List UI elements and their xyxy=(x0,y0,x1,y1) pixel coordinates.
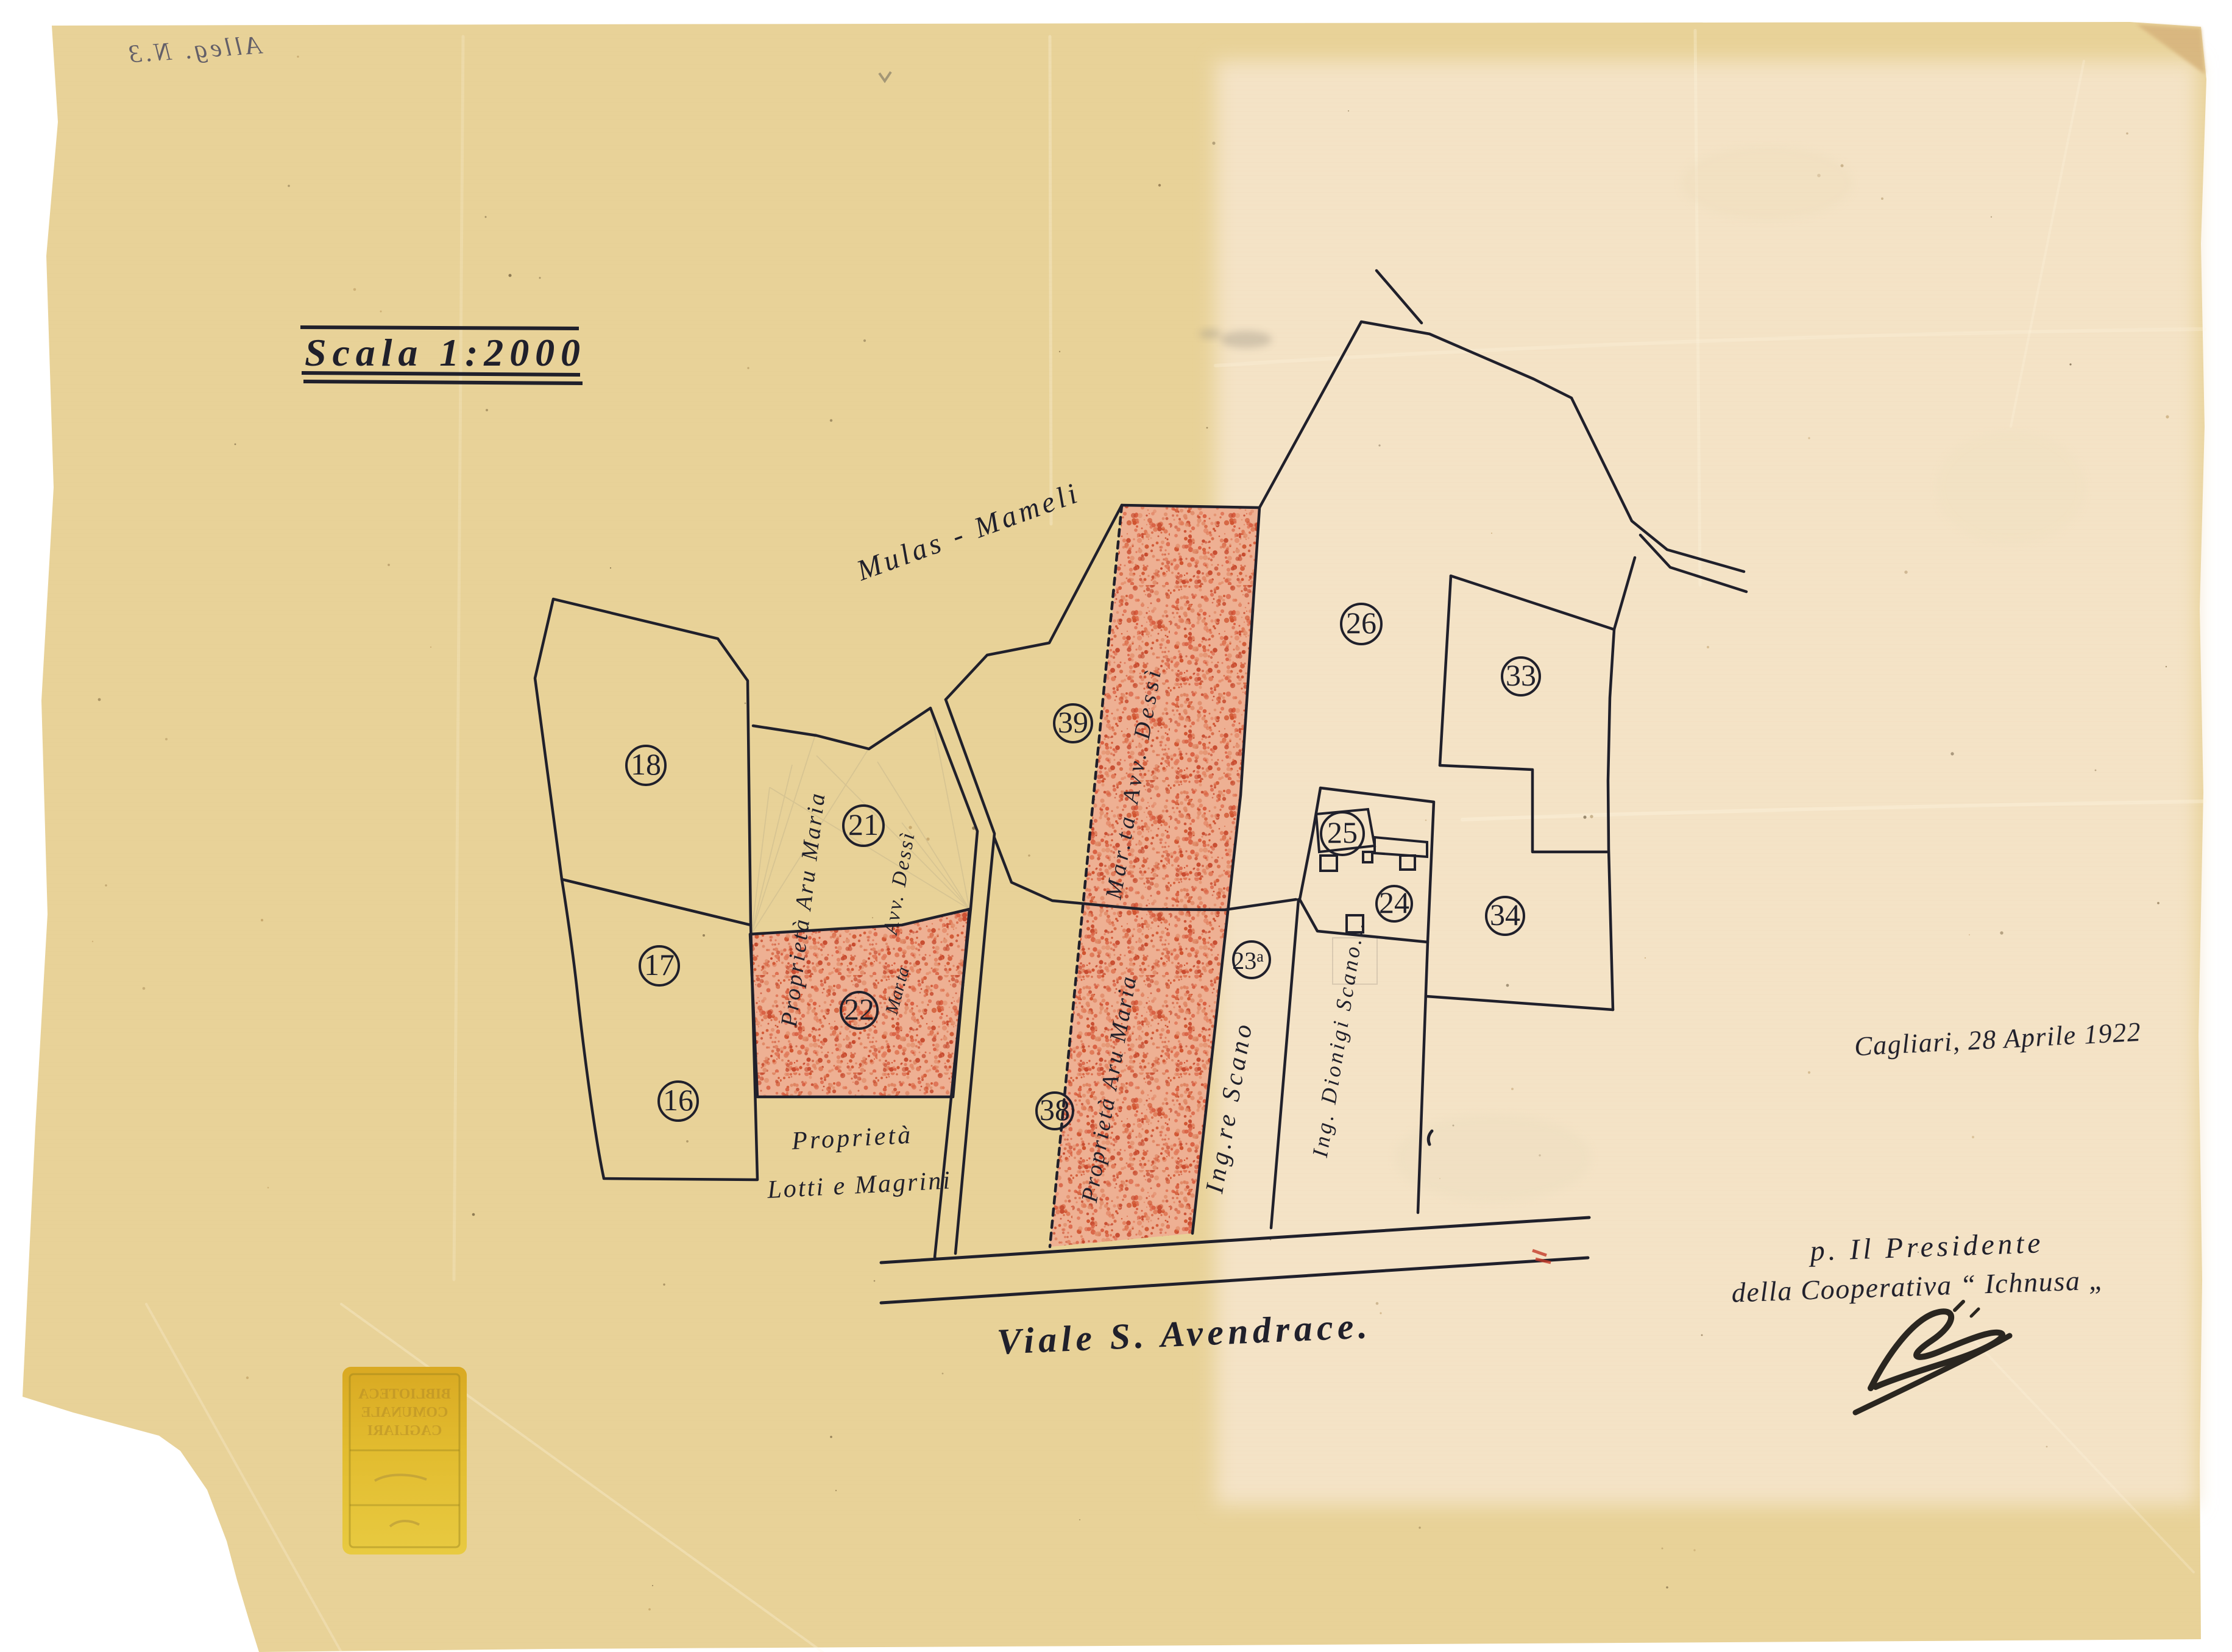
svg-text:BIBLIOTECA: BIBLIOTECA xyxy=(358,1386,451,1402)
svg-text:39: 39 xyxy=(1058,705,1088,739)
svg-text:26: 26 xyxy=(1346,606,1376,640)
svg-text:24: 24 xyxy=(1379,885,1409,920)
svg-text:16: 16 xyxy=(663,1083,693,1117)
svg-text:21: 21 xyxy=(848,807,879,842)
svg-text:33: 33 xyxy=(1506,658,1536,692)
svg-text:17: 17 xyxy=(644,948,675,982)
svg-text:CAGLIARI: CAGLIARI xyxy=(367,1423,442,1439)
svg-text:Scala 1:2000: Scala 1:2000 xyxy=(305,331,580,374)
svg-text:COMUNALE: COMUNALE xyxy=(361,1405,448,1420)
svg-text:22: 22 xyxy=(844,992,874,1026)
svg-text:38: 38 xyxy=(1040,1093,1070,1127)
svg-text:34: 34 xyxy=(1490,898,1520,932)
svg-text:25: 25 xyxy=(1327,815,1358,849)
svg-text:18: 18 xyxy=(631,747,661,781)
